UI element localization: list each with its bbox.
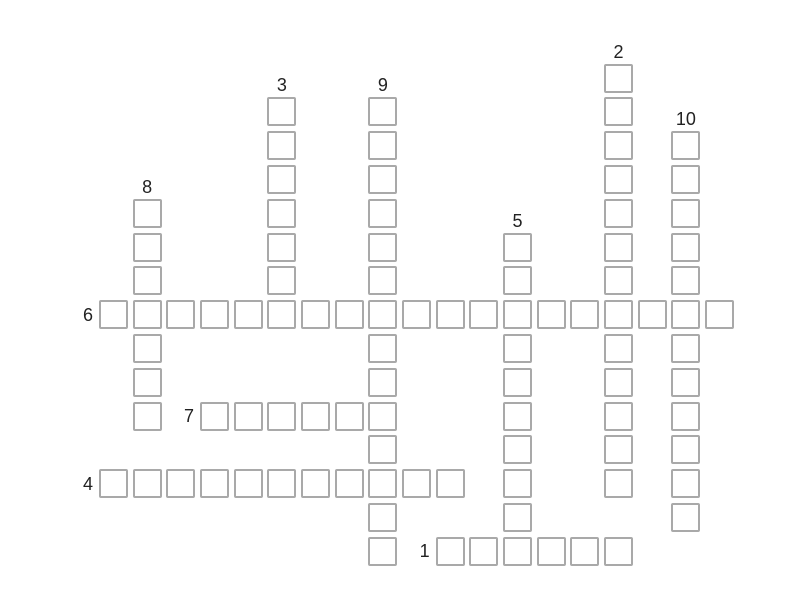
crossword-cell-17-4[interactable] [671, 199, 700, 228]
crossword-cell-4-10[interactable] [234, 402, 263, 431]
crossword-cell-15-6[interactable] [604, 266, 633, 295]
crossword-cell-5-5[interactable] [267, 233, 296, 262]
crossword-cell-14-7[interactable] [570, 300, 599, 329]
crossword-cell-17-2[interactable] [671, 131, 700, 160]
crossword-cell-1-10[interactable] [133, 402, 162, 431]
crossword-cell-17-6[interactable] [671, 266, 700, 295]
crossword-cell-2-12[interactable] [166, 469, 195, 498]
clue-number-5: 5 [498, 211, 538, 231]
crossword-cell-15-4[interactable] [604, 199, 633, 228]
crossword-cell-17-9[interactable] [671, 368, 700, 397]
crossword-cell-12-8[interactable] [503, 334, 532, 363]
crossword-cell-6-7[interactable] [301, 300, 330, 329]
crossword-cell-5-10[interactable] [267, 402, 296, 431]
crossword-cell-17-7[interactable] [671, 300, 700, 329]
crossword-grid: 12345678910 [0, 0, 800, 600]
crossword-cell-15-3[interactable] [604, 165, 633, 194]
crossword-cell-7-10[interactable] [335, 402, 364, 431]
crossword-cell-6-12[interactable] [301, 469, 330, 498]
crossword-cell-17-13[interactable] [671, 503, 700, 532]
crossword-cell-8-2[interactable] [368, 131, 397, 160]
crossword-cell-15-8[interactable] [604, 334, 633, 363]
crossword-cell-1-12[interactable] [133, 469, 162, 498]
crossword-cell-15-10[interactable] [604, 402, 633, 431]
crossword-cell-15-11[interactable] [604, 435, 633, 464]
crossword-cell-12-11[interactable] [503, 435, 532, 464]
crossword-cell-1-7[interactable] [133, 300, 162, 329]
clue-number-2: 2 [599, 42, 639, 62]
crossword-cell-4-7[interactable] [234, 300, 263, 329]
crossword-cell-15-1[interactable] [604, 97, 633, 126]
crossword-cell-11-7[interactable] [469, 300, 498, 329]
crossword-cell-3-7[interactable] [200, 300, 229, 329]
crossword-cell-0-12[interactable] [99, 469, 128, 498]
crossword-cell-17-11[interactable] [671, 435, 700, 464]
crossword-cell-17-5[interactable] [671, 233, 700, 262]
crossword-cell-7-7[interactable] [335, 300, 364, 329]
crossword-cell-17-8[interactable] [671, 334, 700, 363]
crossword-cell-5-6[interactable] [267, 266, 296, 295]
crossword-cell-15-9[interactable] [604, 368, 633, 397]
crossword-cell-7-12[interactable] [335, 469, 364, 498]
crossword-cell-15-7[interactable] [604, 300, 633, 329]
crossword-cell-12-7[interactable] [503, 300, 532, 329]
crossword-cell-17-3[interactable] [671, 165, 700, 194]
crossword-cell-5-1[interactable] [267, 97, 296, 126]
crossword-cell-8-11[interactable] [368, 435, 397, 464]
crossword-cell-18-7[interactable] [705, 300, 734, 329]
crossword-cell-8-10[interactable] [368, 402, 397, 431]
crossword-cell-11-14[interactable] [469, 537, 498, 566]
clue-number-6: 6 [53, 305, 93, 325]
crossword-cell-1-4[interactable] [133, 199, 162, 228]
crossword-cell-10-7[interactable] [436, 300, 465, 329]
crossword-cell-15-5[interactable] [604, 233, 633, 262]
clue-number-4: 4 [53, 474, 93, 494]
crossword-cell-8-12[interactable] [368, 469, 397, 498]
crossword-cell-10-14[interactable] [436, 537, 465, 566]
clue-number-10: 10 [666, 109, 706, 129]
crossword-cell-8-13[interactable] [368, 503, 397, 532]
crossword-cell-8-6[interactable] [368, 266, 397, 295]
crossword-cell-8-4[interactable] [368, 199, 397, 228]
crossword-cell-8-7[interactable] [368, 300, 397, 329]
crossword-cell-9-7[interactable] [402, 300, 431, 329]
crossword-cell-5-12[interactable] [267, 469, 296, 498]
crossword-cell-1-5[interactable] [133, 233, 162, 262]
crossword-cell-5-3[interactable] [267, 165, 296, 194]
crossword-cell-13-7[interactable] [537, 300, 566, 329]
crossword-cell-9-12[interactable] [402, 469, 431, 498]
crossword-cell-5-4[interactable] [267, 199, 296, 228]
crossword-cell-8-9[interactable] [368, 368, 397, 397]
clue-number-3: 3 [262, 75, 302, 95]
crossword-cell-8-8[interactable] [368, 334, 397, 363]
crossword-cell-10-12[interactable] [436, 469, 465, 498]
crossword-cell-12-6[interactable] [503, 266, 532, 295]
crossword-cell-12-9[interactable] [503, 368, 532, 397]
crossword-cell-8-3[interactable] [368, 165, 397, 194]
crossword-cell-2-7[interactable] [166, 300, 195, 329]
crossword-cell-13-14[interactable] [537, 537, 566, 566]
crossword-cell-17-12[interactable] [671, 469, 700, 498]
crossword-cell-6-10[interactable] [301, 402, 330, 431]
crossword-cell-14-14[interactable] [570, 537, 599, 566]
crossword-cell-12-5[interactable] [503, 233, 532, 262]
clue-number-8: 8 [127, 177, 167, 197]
crossword-cell-1-6[interactable] [133, 266, 162, 295]
crossword-cell-15-12[interactable] [604, 469, 633, 498]
crossword-cell-12-12[interactable] [503, 469, 532, 498]
crossword-cell-15-14[interactable] [604, 537, 633, 566]
crossword-cell-12-14[interactable] [503, 537, 532, 566]
crossword-cell-1-8[interactable] [133, 334, 162, 363]
crossword-cell-1-9[interactable] [133, 368, 162, 397]
crossword-cell-15-0[interactable] [604, 64, 633, 93]
crossword-cell-17-10[interactable] [671, 402, 700, 431]
crossword-cell-8-1[interactable] [368, 97, 397, 126]
crossword-cell-3-12[interactable] [200, 469, 229, 498]
crossword-cell-12-10[interactable] [503, 402, 532, 431]
crossword-cell-5-2[interactable] [267, 131, 296, 160]
crossword-cell-8-5[interactable] [368, 233, 397, 262]
crossword-cell-5-7[interactable] [267, 300, 296, 329]
clue-number-9: 9 [363, 75, 403, 95]
crossword-cell-15-2[interactable] [604, 131, 633, 160]
crossword-cell-8-14[interactable] [368, 537, 397, 566]
crossword-cell-3-10[interactable] [200, 402, 229, 431]
crossword-cell-4-12[interactable] [234, 469, 263, 498]
crossword-cell-12-13[interactable] [503, 503, 532, 532]
crossword-cell-16-7[interactable] [638, 300, 667, 329]
crossword-cell-0-7[interactable] [99, 300, 128, 329]
